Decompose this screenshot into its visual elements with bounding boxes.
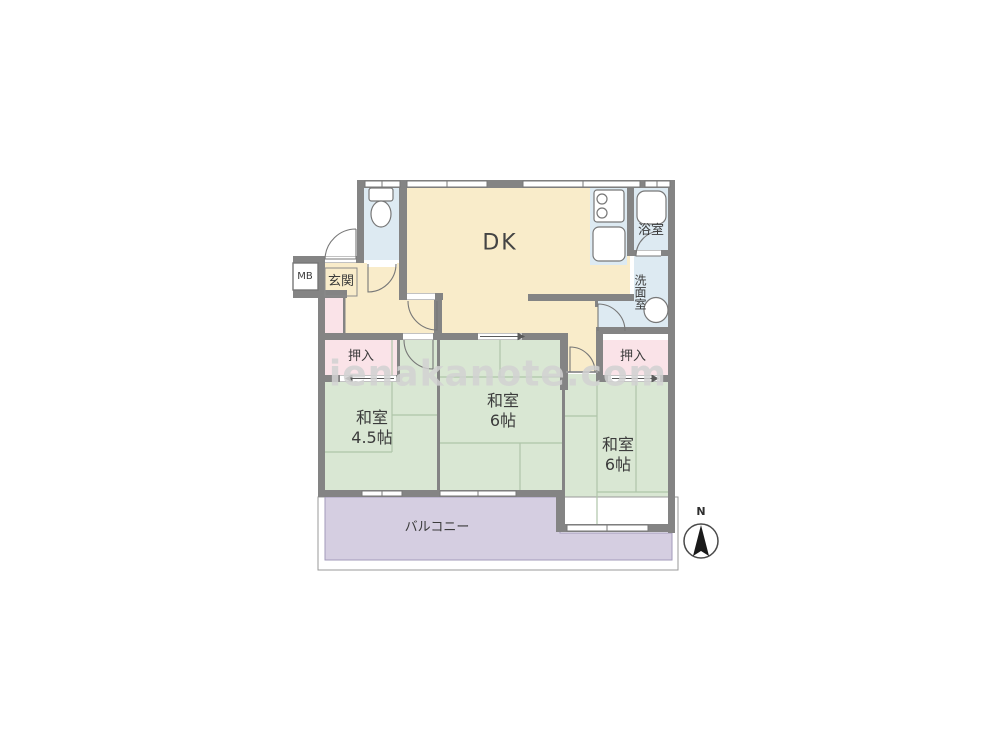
toilet-door-gap bbox=[367, 260, 397, 267]
door-a-gap bbox=[407, 294, 435, 300]
label-compass-north: N bbox=[696, 505, 705, 519]
label-japanese-room-6-right-size: 6帖 bbox=[602, 455, 634, 475]
wall-vestibule bbox=[434, 293, 442, 340]
label-closet-right: 押入 bbox=[620, 349, 646, 365]
label-japanese-room-45: 和室 4.5帖 bbox=[351, 408, 392, 448]
door-b-gap bbox=[403, 334, 433, 340]
toilet-icon bbox=[369, 188, 393, 227]
washbasin-icon bbox=[644, 298, 668, 323]
label-entrance: 玄関 bbox=[328, 274, 354, 290]
balcony-group bbox=[318, 497, 678, 570]
wall-shoe-cabinet bbox=[343, 298, 346, 333]
label-washroom: 洗面室 bbox=[634, 274, 646, 310]
label-japanese-room-45-size: 4.5帖 bbox=[351, 428, 392, 448]
wall-right-outer bbox=[668, 180, 675, 533]
watermark: ienakanote.com bbox=[329, 354, 667, 395]
balcony-floor-right bbox=[560, 533, 672, 560]
toilet-bowl bbox=[371, 201, 391, 227]
stove-burner-1 bbox=[597, 194, 607, 204]
label-bathroom: 浴室 bbox=[638, 223, 664, 239]
wall-row-middle bbox=[318, 333, 568, 340]
wall-toilet-right bbox=[399, 185, 407, 300]
label-dining-kitchen: DK bbox=[482, 229, 517, 257]
wall-corridor-top bbox=[528, 294, 634, 301]
floorplan-page: ienakanote.com MB 玄関 DK 浴室 洗面室 押入 押入 和室 … bbox=[0, 0, 1000, 750]
window-kitchen bbox=[523, 181, 640, 187]
label-japanese-room-6-right-name: 和室 bbox=[602, 435, 634, 455]
wall-step bbox=[556, 490, 565, 532]
hall-floor bbox=[442, 296, 598, 334]
wall-left-lower bbox=[318, 263, 325, 497]
stove-burner-2 bbox=[597, 208, 607, 218]
bath-door-gap bbox=[636, 251, 661, 256]
wall-left-upper bbox=[357, 180, 364, 263]
fusuma-right bbox=[562, 390, 565, 490]
label-japanese-room-6-right: 和室 6帖 bbox=[602, 435, 634, 475]
label-meter-box: MB bbox=[297, 271, 313, 284]
bathtub-icon bbox=[637, 191, 666, 224]
label-closet-left: 押入 bbox=[348, 349, 374, 365]
shoe-cabinet bbox=[325, 298, 343, 333]
label-japanese-room-45-name: 和室 bbox=[351, 408, 392, 428]
kitchen-sink-icon bbox=[593, 227, 625, 261]
compass-icon bbox=[684, 524, 718, 558]
stove-icon bbox=[594, 190, 624, 222]
wall-kitchen-right bbox=[627, 188, 634, 256]
label-japanese-room-6-center-size: 6帖 bbox=[487, 411, 519, 431]
wall-washroom-bottom bbox=[596, 327, 668, 334]
entrance-door-arc bbox=[325, 229, 356, 259]
label-balcony: バルコニー bbox=[405, 520, 470, 536]
label-japanese-room-6-center-name: 和室 bbox=[487, 391, 519, 411]
toilet-tank bbox=[369, 188, 393, 201]
label-japanese-room-6-center: 和室 6帖 bbox=[487, 391, 519, 431]
